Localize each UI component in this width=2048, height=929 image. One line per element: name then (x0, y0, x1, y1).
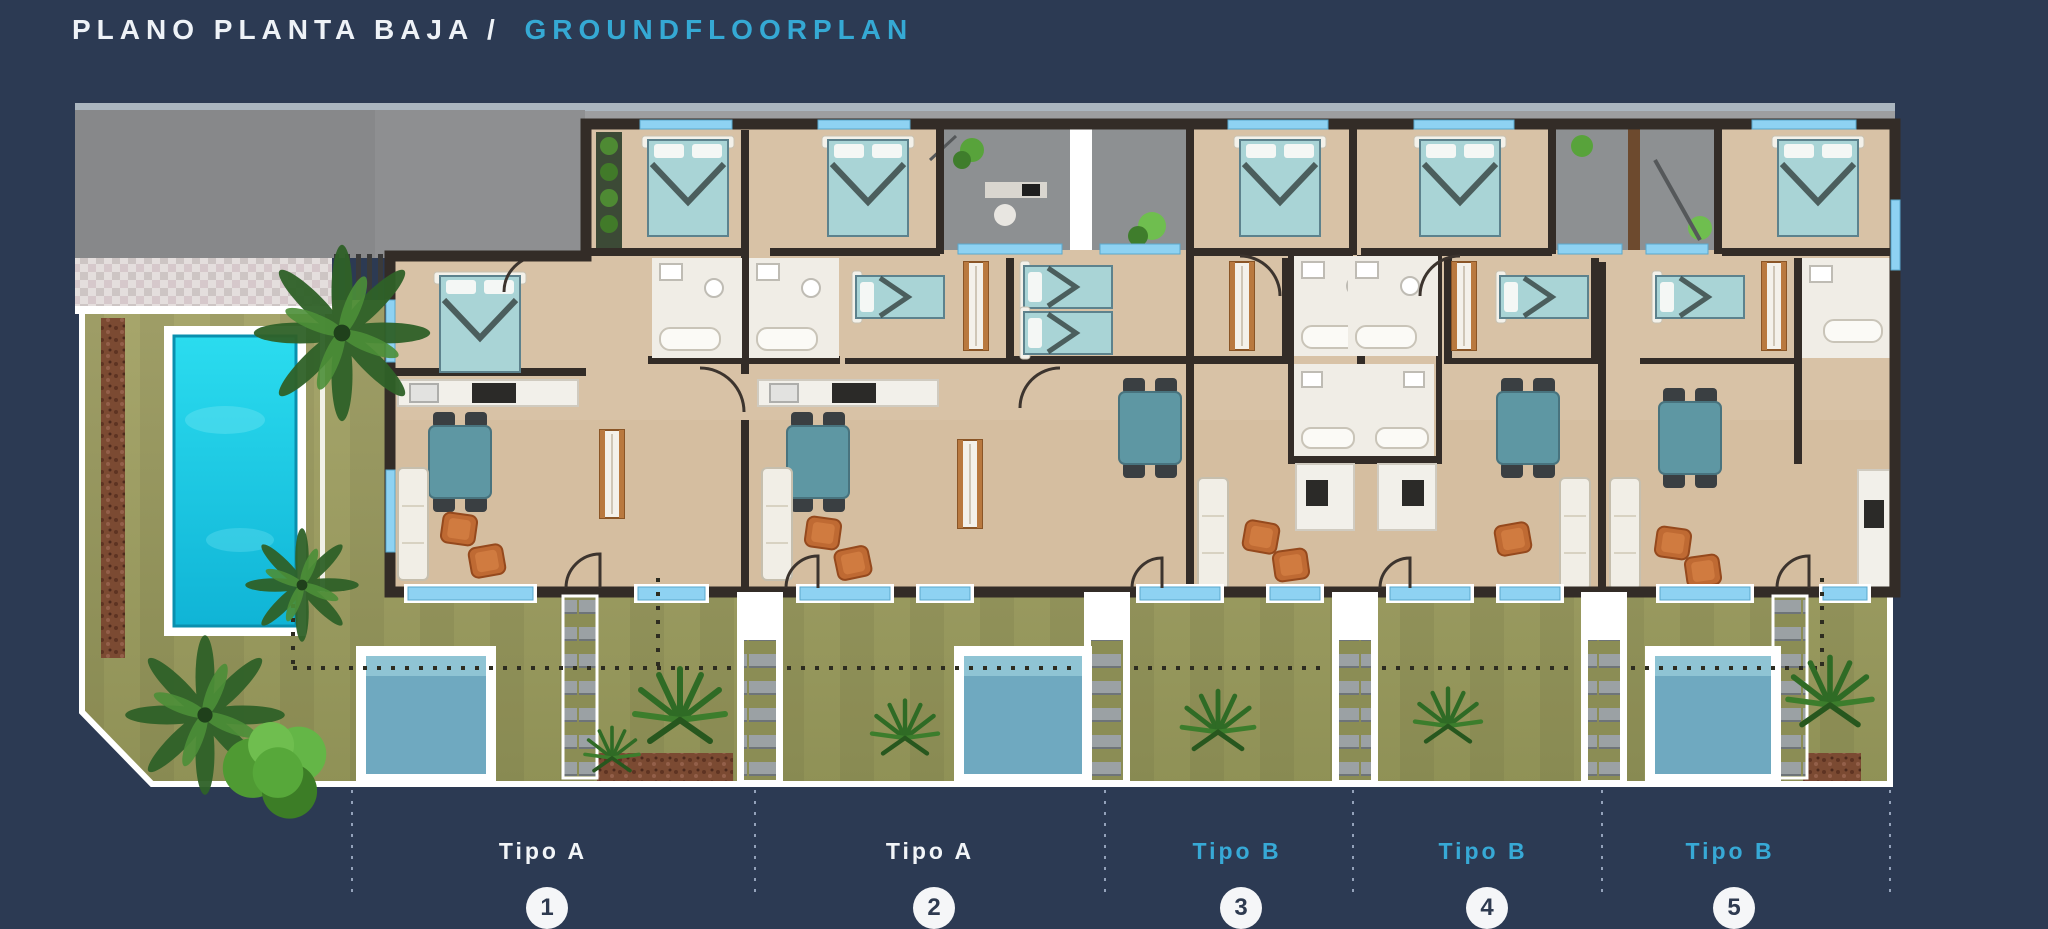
bathroom (749, 258, 839, 358)
unit-number-badge-3: 3 (1220, 887, 1262, 929)
sofa (1198, 478, 1228, 590)
unit-label-2: Tipo A (830, 838, 1030, 865)
armchair (1242, 519, 1281, 554)
double-bed (642, 136, 734, 236)
armchair (1684, 554, 1722, 588)
single-bed (1496, 271, 1588, 323)
planter (596, 132, 622, 252)
unit-number-badge-4: 4 (1466, 887, 1508, 929)
bathroom (1348, 256, 1438, 356)
unit-label-1: Tipo A (443, 838, 643, 865)
armchair (1272, 548, 1310, 582)
double-bed (434, 272, 526, 372)
dining-table (1119, 378, 1181, 478)
wardrobe (964, 262, 988, 350)
sofa (398, 468, 428, 580)
mulch-bed (1803, 753, 1861, 781)
sofa (762, 468, 792, 580)
armchair (833, 545, 872, 581)
single-bed (1652, 271, 1744, 323)
unit-number-badge-1: 1 (526, 887, 568, 929)
sidewalk-edge (75, 103, 1895, 111)
sofa (1560, 478, 1590, 590)
dining-table (787, 412, 849, 512)
wardrobe (600, 430, 624, 518)
armchair (804, 516, 842, 550)
double-bed (1772, 136, 1864, 236)
armchair (440, 512, 478, 546)
unit-label-5: Tipo B (1630, 838, 1830, 865)
double-bed (1234, 136, 1326, 236)
kitchen-counter (758, 380, 938, 406)
building (386, 120, 1900, 603)
armchair (468, 543, 507, 578)
kitchen-counter (398, 380, 578, 406)
armchair (1654, 526, 1692, 560)
title-spanish: PLANO PLANTA BAJA / (72, 14, 501, 45)
double-bed (822, 136, 914, 236)
wardrobe (958, 440, 982, 528)
single-bed (1020, 261, 1112, 313)
unit-number-badge-5: 5 (1713, 887, 1755, 929)
unit-label-3: Tipo B (1137, 838, 1337, 865)
bathroom (652, 258, 742, 358)
single-bed (852, 271, 944, 323)
page-title: PLANO PLANTA BAJA / GROUNDFLOORPLAN (72, 14, 913, 50)
dining-table (1497, 378, 1559, 478)
wardrobe (1452, 262, 1476, 350)
single-bed (1020, 307, 1112, 359)
dining-table (429, 412, 491, 512)
double-bed (1414, 136, 1506, 236)
title-english: GROUNDFLOORPLAN (525, 14, 914, 45)
unit-label-4: Tipo B (1383, 838, 1583, 865)
mulch-bed (101, 318, 125, 658)
kitchen-counter (1858, 470, 1890, 588)
wardrobe (1762, 262, 1786, 350)
dining-table (1659, 388, 1721, 488)
palm-tree-icon (254, 245, 430, 421)
unit-number-badge-2: 2 (913, 887, 955, 929)
palm-tree-icon (245, 528, 358, 641)
ground-floor-plan (0, 0, 2048, 900)
sofa (1610, 478, 1640, 590)
armchair (1494, 521, 1533, 556)
wardrobe (1230, 262, 1254, 350)
